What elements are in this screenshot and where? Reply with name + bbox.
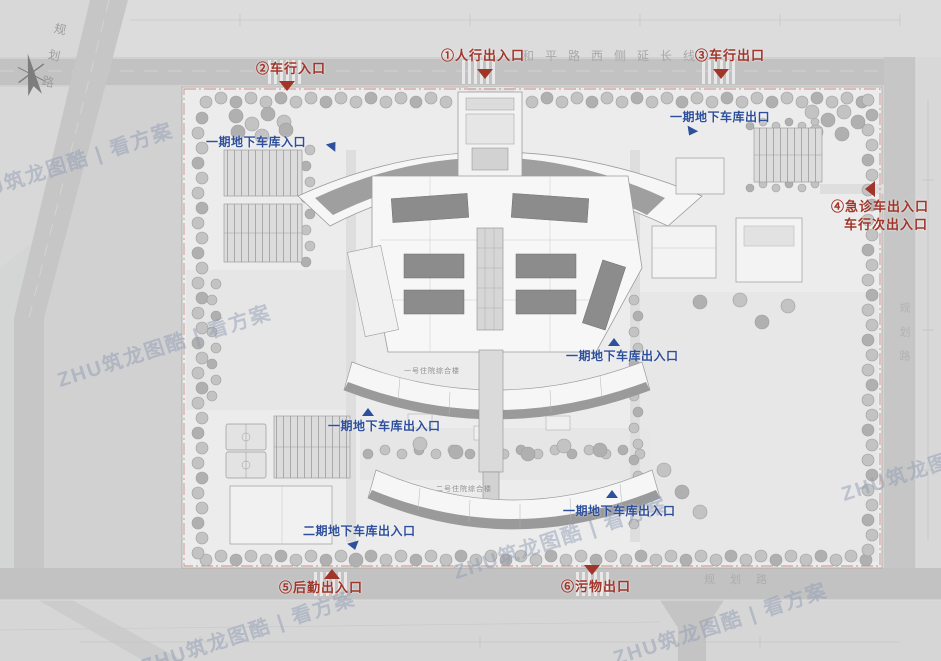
building-spine xyxy=(479,350,503,472)
entrance-arrow-icon xyxy=(584,565,600,575)
building-name-ward1: 一号住院综合楼 xyxy=(404,368,460,376)
garage-label-p1-inout-south: 一期地下车库出入口 xyxy=(563,505,676,519)
entrance-label-waste: ⑥污物出口 xyxy=(561,580,631,595)
entrance-arrow-icon xyxy=(477,69,493,79)
entrance-arrow-icon xyxy=(279,81,295,91)
east-parcel xyxy=(916,57,941,568)
road-name-top: 和平路西侧延长线 xyxy=(522,47,706,64)
entrance-label-logistics: ⑤后勤出入口 xyxy=(279,581,363,596)
road-name-bottom: 规划路 xyxy=(704,571,782,587)
road-name-right: 规划路 xyxy=(896,302,912,374)
entrance-label-secondary: 车行次出入口 xyxy=(844,218,928,233)
parking-lot-northwest xyxy=(224,150,302,262)
garage-arrow-icon xyxy=(608,338,620,346)
garage-label-p1-out: 一期地下车库出口 xyxy=(670,111,770,125)
garage-label-p1-inout-west: 一期地下车库出入口 xyxy=(328,420,441,434)
entrance-label-emergency: ④急诊车出入口 xyxy=(831,200,929,215)
garage-arrow-icon xyxy=(362,408,374,416)
garage-label-p1-in: 一期地下车库入口 xyxy=(206,136,306,150)
garage-arrow-icon xyxy=(606,490,618,498)
parking-lot-northeast xyxy=(754,128,822,182)
entrance-arrow-icon xyxy=(324,569,340,579)
lawn-right xyxy=(640,292,878,562)
entrance-arrow-icon xyxy=(865,181,875,197)
entrance-label-pedestrian: ①人行出入口 xyxy=(441,49,525,64)
building-name-ward2: 二号住院综合楼 xyxy=(436,486,492,494)
site-plan: 和平路西侧延长线 规划路 规划路 规划路 ZHU筑龙图酷 | 看方案 ZHU筑龙… xyxy=(0,0,941,661)
garage-label-p1-inout-mid: 一期地下车库出入口 xyxy=(566,350,679,364)
entrance-arrow-icon xyxy=(713,69,729,79)
entrance-label-vehicle-out: ③车行出口 xyxy=(695,49,765,64)
garage-label-p2-inout: 二期地下车库出入口 xyxy=(303,525,416,539)
entrance-label-vehicle-in: ②车行入口 xyxy=(256,62,326,77)
